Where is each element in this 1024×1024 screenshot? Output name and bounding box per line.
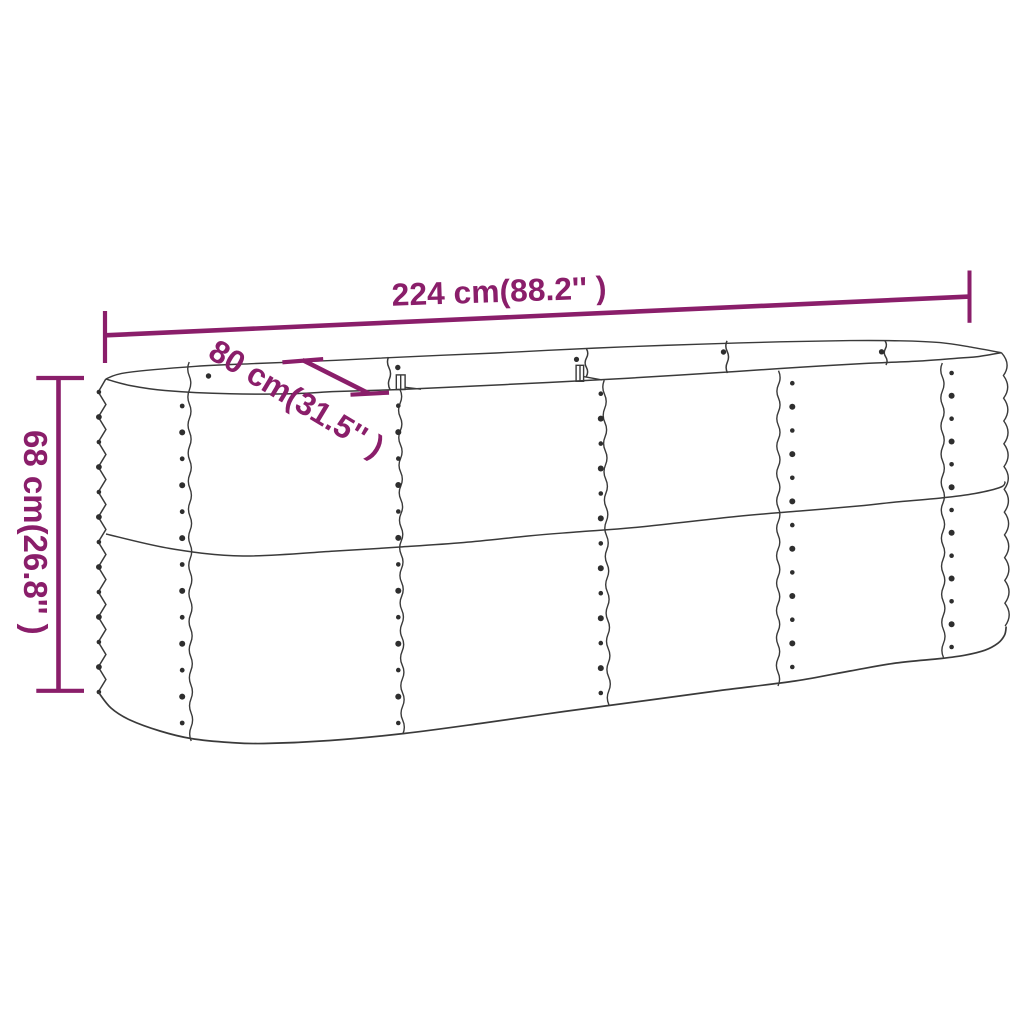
svg-text:224 cm(88.2'' ): 224 cm(88.2'' )	[391, 269, 607, 312]
svg-text:68 cm(26.8'' ): 68 cm(26.8'' )	[17, 430, 54, 635]
